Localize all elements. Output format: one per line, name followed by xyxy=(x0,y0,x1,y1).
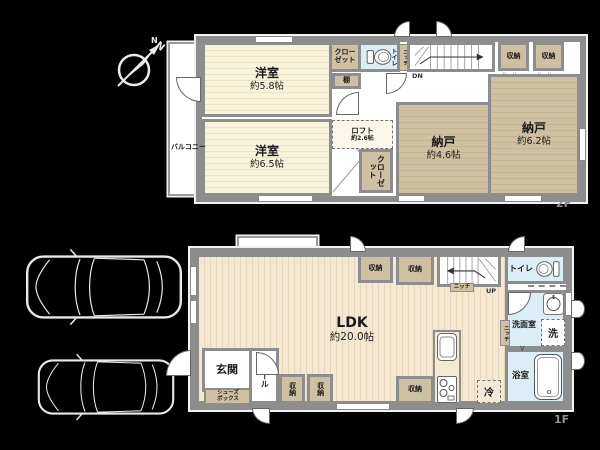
door-arc-exterior xyxy=(571,300,585,318)
door-arc-exterior xyxy=(394,21,410,37)
storage-1f-v1: 収納 xyxy=(279,374,305,404)
room-name: 洋室 xyxy=(255,145,279,159)
toilet-icon xyxy=(536,259,562,279)
toilet-1f: トイレ xyxy=(505,254,566,284)
window xyxy=(579,128,586,161)
car-icon xyxy=(24,248,184,326)
stairs-niche: ニッチ xyxy=(450,283,474,292)
stairs-treads xyxy=(440,257,498,284)
shoes-box-label: ボックス xyxy=(217,397,239,403)
genkan: 玄関 xyxy=(202,348,252,392)
wall-niche: ニッチ xyxy=(500,320,510,346)
closet-2f-top: クロー ゼット xyxy=(329,42,361,72)
door-arc-exterior xyxy=(456,408,474,424)
fold-door-mark: ∨ xyxy=(519,344,526,354)
floor-plan-image: N N バルコニー 洋室 約5.8帖 クロー ゼット 棚 トイレ ニッチ xyxy=(0,0,600,450)
storage-label: 収納 xyxy=(316,382,323,396)
floor-label-1f: 1F xyxy=(554,413,569,426)
storage-1f-v2: 収納 xyxy=(307,374,333,404)
room-nando-4-6: 納戸 約4.6帖 xyxy=(396,102,491,196)
toilet-label: トイレ xyxy=(509,265,533,274)
stove-icon xyxy=(437,376,457,403)
door-arc-exterior xyxy=(350,236,366,252)
room-size: 約20.0帖 xyxy=(330,331,374,344)
loft-size: 約2.6帖 xyxy=(351,136,374,142)
sliding-door xyxy=(528,285,566,287)
room-name: 洋室 xyxy=(255,67,279,81)
storage-2f-2: 収納 xyxy=(533,42,564,71)
compass-north-label: N xyxy=(151,36,158,45)
bathtub-icon xyxy=(534,354,562,400)
loft-area: ロフト 約2.6帖 xyxy=(332,120,393,149)
storage-label: 収納 xyxy=(408,386,422,394)
bathroom-label: 浴室 xyxy=(512,372,529,381)
room-western-5-8: 洋室 約5.8帖 xyxy=(202,42,332,117)
toilet-2f: トイレ xyxy=(358,42,400,72)
storage-label: 収納 xyxy=(507,53,521,61)
balcony xyxy=(168,42,198,196)
car-icon xyxy=(36,352,176,422)
window xyxy=(336,403,390,410)
door-arc-exterior xyxy=(508,236,525,252)
washing-machine: 洗 xyxy=(541,319,565,346)
storage-1f-top1: 収納 xyxy=(358,254,393,283)
genkan-label: 玄関 xyxy=(216,364,238,377)
niche-label: ニッチ xyxy=(401,49,407,66)
window xyxy=(255,36,293,43)
storage-1f-top2: 収納 xyxy=(396,254,434,285)
door-arc-exterior xyxy=(252,408,270,424)
window xyxy=(258,195,313,202)
stairs-up-label: UP xyxy=(486,288,496,295)
window xyxy=(190,300,197,324)
washing-machine-label: 洗 xyxy=(548,325,558,340)
storage-label: 収納 xyxy=(542,53,556,61)
stairs-treads xyxy=(410,45,492,69)
room-size: 約4.6帖 xyxy=(426,150,460,161)
room-size: 約5.8帖 xyxy=(250,81,284,92)
door-arc-exterior xyxy=(571,352,585,370)
storage-1f-bottom: 収納 xyxy=(396,376,434,404)
room-name: 納戸 xyxy=(431,136,455,150)
balcony-label: バルコニー xyxy=(171,142,206,152)
floor-label-2f: 2F xyxy=(556,197,571,210)
room-nando-6-2: 納戸 約6.2帖 xyxy=(488,74,580,196)
window xyxy=(190,266,197,296)
stairs-2f xyxy=(407,42,495,72)
shoes-box: シューズ ボックス xyxy=(204,388,252,405)
room-western-6-5: 洋室 約6.5帖 xyxy=(202,119,332,196)
stairs-down-label: DN xyxy=(412,73,423,80)
window xyxy=(504,195,542,202)
north-compass-icon: N xyxy=(108,34,170,96)
door-arc-exterior xyxy=(436,21,452,37)
closet-label: ゼット xyxy=(335,57,356,65)
storage-label: 収納 xyxy=(288,382,295,396)
toilet-label: トイレ xyxy=(390,48,396,66)
storage-label: 収納 xyxy=(369,265,383,273)
room-size: 約6.5帖 xyxy=(250,159,284,170)
shelf-2f: 棚 xyxy=(332,73,361,89)
room-size: 約6.2帖 xyxy=(517,136,551,147)
fridge-label: 冷 xyxy=(484,384,494,399)
room-name: LDK xyxy=(336,315,367,331)
kitchen-sink-icon xyxy=(437,333,457,361)
storage-2f-1: 収納 xyxy=(498,42,529,71)
storage-label: 収納 xyxy=(408,266,422,274)
room-name: 納戸 xyxy=(522,122,546,136)
closet-label: クローゼット xyxy=(368,153,385,189)
shelf-label: 棚 xyxy=(343,77,350,85)
niche-label: ニッチ xyxy=(502,325,508,342)
washroom-label: 洗面室 xyxy=(512,321,536,330)
washbasin-icon xyxy=(543,293,564,315)
window xyxy=(398,195,425,202)
fridge: 冷 xyxy=(477,380,501,403)
closet-2f-bottom: クローゼット xyxy=(359,149,393,193)
niche-label: ニッチ xyxy=(454,285,471,291)
